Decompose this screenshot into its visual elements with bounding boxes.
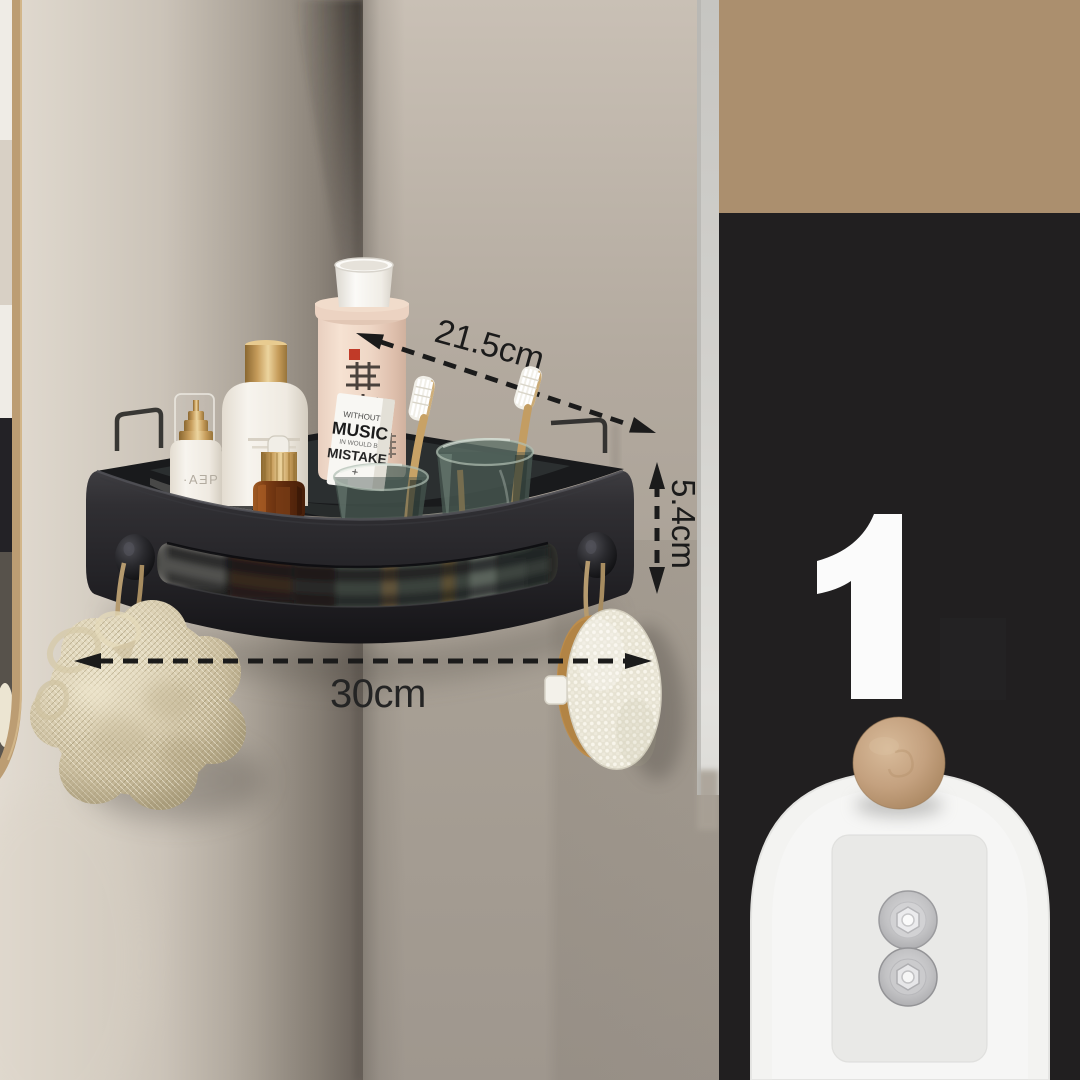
- svg-text:30cm: 30cm: [330, 672, 426, 716]
- svg-text:5.4cm: 5.4cm: [665, 479, 702, 569]
- svg-text:·AƎP: ·AƎP: [183, 472, 219, 487]
